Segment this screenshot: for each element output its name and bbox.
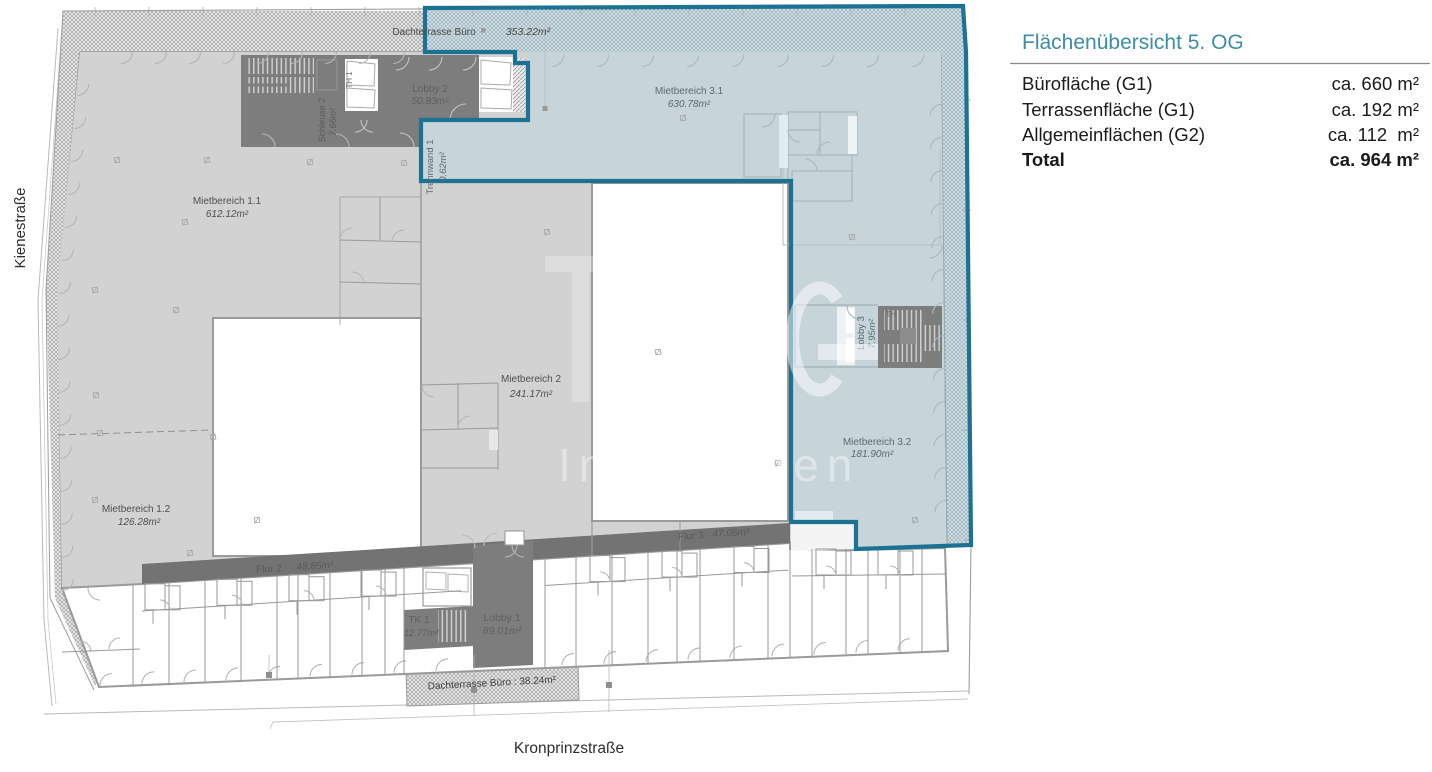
svg-text:Terrassenfläche (G1): Terrassenfläche (G1) bbox=[1022, 99, 1195, 120]
svg-text:Total: Total bbox=[1022, 149, 1065, 170]
svg-text:Bürofläche (G1): Bürofläche (G1) bbox=[1022, 73, 1153, 94]
svg-text:TH: TH bbox=[886, 310, 897, 319]
svg-text:7.66m²: 7.66m² bbox=[328, 107, 338, 136]
svg-text:Kronprinzstraße: Kronprinzstraße bbox=[514, 740, 624, 757]
svg-text:241.17m²: 241.17m² bbox=[509, 389, 553, 400]
svg-text:ca. 660 m²: ca. 660 m² bbox=[1332, 73, 1419, 94]
svg-text:Flächenübersicht 5. OG: Flächenübersicht 5. OG bbox=[1022, 31, 1244, 54]
svg-text:TH 1: TH 1 bbox=[345, 71, 354, 89]
svg-text:48.85m²: 48.85m² bbox=[296, 560, 334, 573]
svg-text:50.83m²: 50.83m² bbox=[412, 96, 449, 107]
svg-text:Schleuse 2: Schleuse 2 bbox=[317, 98, 327, 143]
svg-text:Immobilien: Immobilien bbox=[558, 439, 860, 491]
svg-text:126.28m²: 126.28m² bbox=[118, 517, 161, 528]
svg-text:353.22m²: 353.22m² bbox=[506, 26, 551, 38]
svg-text:Mietbereich 2: Mietbereich 2 bbox=[501, 374, 561, 385]
svg-text:Mietbereich 1.2: Mietbereich 1.2 bbox=[102, 504, 171, 515]
svg-text:Lobby 2: Lobby 2 bbox=[412, 84, 448, 95]
svg-text:Flur 3: Flur 3 bbox=[678, 530, 705, 542]
svg-text:Trennwand 1: Trennwand 1 bbox=[425, 139, 436, 194]
svg-text:Flur 2: Flur 2 bbox=[256, 563, 283, 575]
svg-text:Mietbereich 1.1: Mietbereich 1.1 bbox=[193, 196, 262, 207]
svg-text:Allgemeinflächen (G2): Allgemeinflächen (G2) bbox=[1022, 124, 1205, 145]
svg-text:Dachterrasse Büro: Dachterrasse Büro bbox=[392, 27, 476, 38]
svg-text:Lobby 1: Lobby 1 bbox=[483, 612, 521, 624]
svg-text:Kienestraße: Kienestraße bbox=[12, 188, 29, 269]
svg-text:ca. 192 m²: ca. 192 m² bbox=[1332, 99, 1419, 120]
svg-text:12.77m²: 12.77m² bbox=[404, 628, 440, 639]
svg-text:ca. 112 m²: ca. 112 m² bbox=[1328, 124, 1419, 145]
svg-text:89.01m²: 89.01m² bbox=[483, 625, 522, 637]
svg-text:630.78m²: 630.78m² bbox=[668, 99, 711, 110]
svg-text:612.12m²: 612.12m² bbox=[206, 209, 249, 220]
svg-text:Mietbereich 3.1: Mietbereich 3.1 bbox=[655, 86, 724, 97]
svg-text:47.05m²: 47.05m² bbox=[712, 527, 750, 540]
svg-text:0.62m²: 0.62m² bbox=[438, 151, 449, 181]
svg-text:ca. 964 m²: ca. 964 m² bbox=[1330, 149, 1419, 170]
svg-text:TK 1: TK 1 bbox=[408, 615, 430, 626]
